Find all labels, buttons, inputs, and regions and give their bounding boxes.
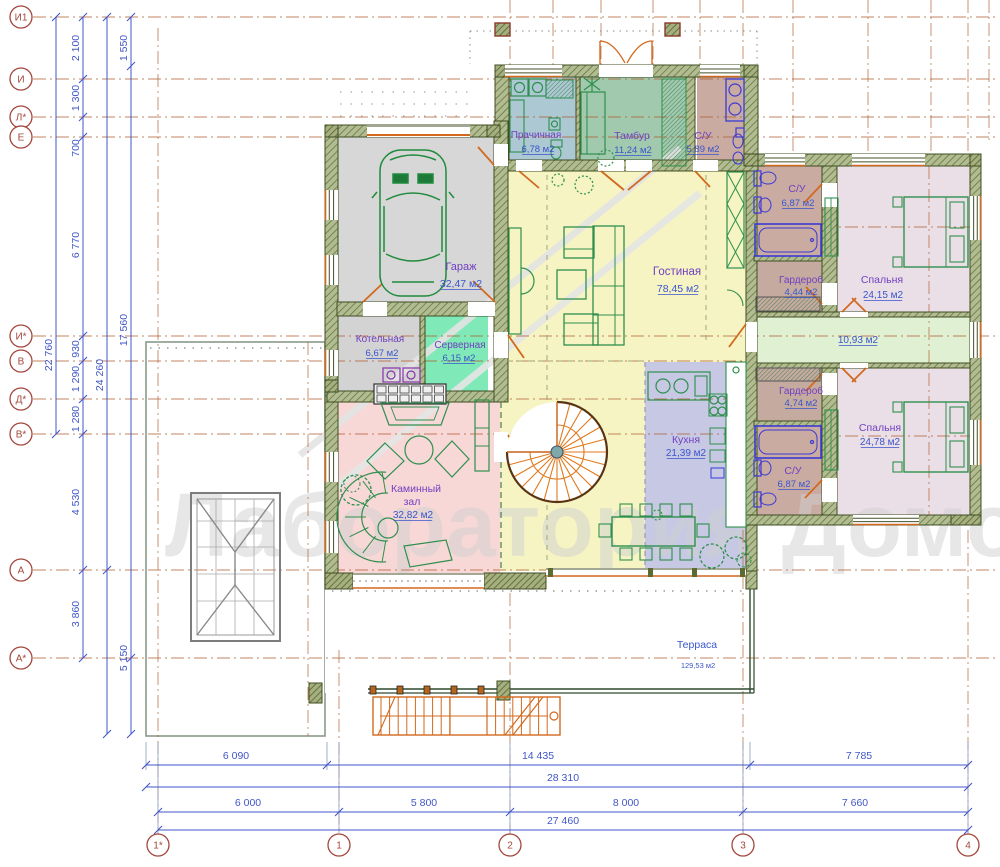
svg-text:Серверная: Серверная	[434, 340, 485, 351]
svg-text:22 760: 22 760	[43, 339, 55, 371]
svg-text:2: 2	[507, 841, 513, 852]
svg-text:В*: В*	[16, 430, 27, 441]
svg-text:1: 1	[336, 841, 342, 852]
svg-text:зал: зал	[404, 496, 421, 508]
svg-text:3 860: 3 860	[70, 601, 82, 627]
svg-text:Гардероб: Гардероб	[779, 274, 823, 286]
svg-text:И1: И1	[15, 13, 28, 24]
svg-text:Кухня: Кухня	[672, 434, 700, 446]
svg-text:3: 3	[740, 841, 746, 852]
svg-text:27 460: 27 460	[547, 815, 579, 827]
svg-text:Гостиная: Гостиная	[653, 266, 701, 278]
svg-text:С/У: С/У	[694, 130, 712, 142]
svg-text:И*: И*	[15, 332, 26, 343]
svg-text:17 560: 17 560	[118, 314, 130, 346]
svg-text:А*: А*	[16, 654, 27, 665]
svg-text:Спальня: Спальня	[861, 274, 903, 286]
svg-text:4,74 м2: 4,74 м2	[785, 398, 818, 409]
svg-text:6 090: 6 090	[223, 750, 249, 762]
svg-text:24,78 м2: 24,78 м2	[860, 437, 901, 448]
svg-text:Терраса: Терраса	[677, 639, 717, 651]
svg-text:Гараж: Гараж	[445, 261, 477, 273]
svg-text:4 530: 4 530	[70, 489, 82, 515]
svg-text:Прачичная: Прачичная	[511, 130, 562, 141]
svg-text:10,93 м2: 10,93 м2	[838, 335, 879, 346]
svg-text:21,39 м2: 21,39 м2	[666, 448, 707, 459]
svg-text:24,15 м2: 24,15 м2	[863, 290, 904, 301]
svg-text:6 770: 6 770	[70, 232, 82, 258]
svg-text:129,53 м2: 129,53 м2	[681, 661, 715, 670]
svg-text:6,87 м2: 6,87 м2	[778, 479, 811, 490]
svg-text:1 280: 1 280	[70, 406, 82, 432]
svg-text:1 550: 1 550	[118, 35, 130, 61]
svg-text:4,44 м2: 4,44 м2	[785, 287, 818, 298]
svg-text:700: 700	[70, 139, 82, 157]
svg-text:5,89 м2: 5,89 м2	[687, 144, 720, 155]
svg-text:Котельная: Котельная	[356, 334, 404, 345]
svg-text:С/У: С/У	[788, 183, 806, 195]
svg-text:Каминный: Каминный	[391, 483, 441, 495]
svg-text:Гардероб: Гардероб	[779, 385, 823, 397]
svg-text:В: В	[18, 357, 25, 368]
svg-text:28 310: 28 310	[547, 772, 579, 784]
svg-text:Тамбур: Тамбур	[614, 130, 650, 142]
svg-text:32,47 м2: 32,47 м2	[440, 278, 482, 290]
svg-text:11,24 м2: 11,24 м2	[614, 145, 652, 156]
svg-text:6,87 м2: 6,87 м2	[782, 198, 815, 209]
svg-text:А: А	[18, 566, 25, 577]
svg-text:Спальня: Спальня	[859, 422, 901, 434]
svg-text:6,15 м2: 6,15 м2	[443, 353, 476, 364]
svg-text:14 435: 14 435	[522, 750, 554, 762]
svg-text:1 300: 1 300	[70, 85, 82, 111]
svg-text:7 660: 7 660	[842, 797, 868, 809]
svg-text:1*: 1*	[153, 841, 163, 852]
svg-text:24 260: 24 260	[94, 359, 106, 391]
svg-text:6,78 м2: 6,78 м2	[522, 144, 555, 155]
svg-text:Л*: Л*	[16, 113, 27, 124]
svg-text:И: И	[17, 75, 24, 86]
svg-text:78,45 м2: 78,45 м2	[657, 283, 699, 295]
svg-text:930: 930	[70, 340, 82, 358]
svg-text:5 800: 5 800	[411, 797, 437, 809]
svg-text:8 000: 8 000	[613, 797, 639, 809]
svg-text:2 100: 2 100	[70, 35, 82, 61]
svg-text:С/У: С/У	[784, 465, 802, 477]
svg-text:Е: Е	[18, 133, 25, 144]
svg-text:4: 4	[965, 841, 971, 852]
svg-text:32,82 м2: 32,82 м2	[393, 510, 434, 521]
svg-text:6,67 м2: 6,67 м2	[366, 348, 399, 359]
svg-text:5 150: 5 150	[118, 645, 130, 671]
svg-text:6 000: 6 000	[235, 797, 261, 809]
svg-text:1 290: 1 290	[70, 366, 82, 392]
svg-text:Д*: Д*	[16, 395, 27, 406]
svg-text:7 785: 7 785	[846, 750, 872, 762]
